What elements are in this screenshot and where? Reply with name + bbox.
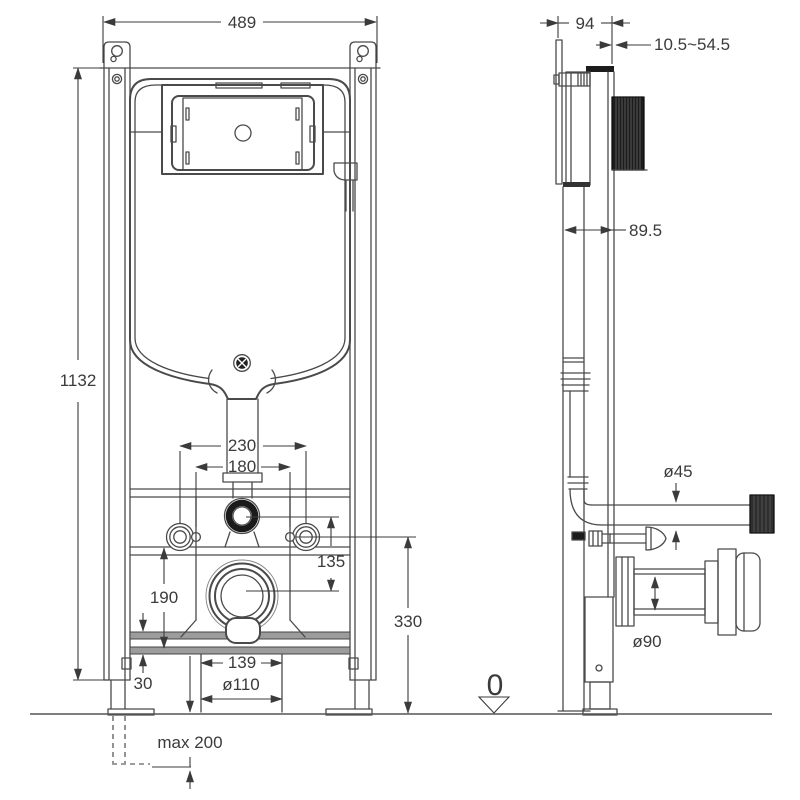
push-button-hole: [235, 125, 251, 141]
dim-waste-pipe-diameter: ø110: [201, 675, 282, 699]
access-panel: [162, 83, 323, 174]
flush-valve-screw: [234, 355, 251, 372]
fixing-rod: [589, 527, 666, 550]
dim-label-wall-adjustment-range: 10.5~54.5: [654, 35, 730, 54]
dim-label-waste-pipe-diameter: ø110: [222, 675, 260, 694]
dim-label-waste-connector-diameter: ø90: [632, 632, 661, 651]
dim-label-inner-fixing-spacing: 180: [228, 457, 256, 476]
flush-pipe-coupling: [750, 495, 774, 533]
side-frame: [556, 40, 617, 715]
dim-label-overall-depth: 94: [576, 14, 595, 33]
waste-connector: [616, 549, 760, 635]
dim-overall-width: 489: [103, 13, 377, 63]
front-view: [100, 42, 380, 715]
dim-waste-connector-diameter: ø90: [632, 577, 661, 651]
dim-overall-height: 1132: [60, 68, 108, 680]
dim-outlet-bracket-width: 139: [201, 653, 282, 672]
dim-overall-depth: 94: [540, 14, 630, 64]
inlet-fitting: [554, 73, 590, 86]
dim-label-rail-end-offset: 30: [134, 674, 153, 693]
technical-drawing: 489 1132 230 180 135: [0, 0, 800, 800]
dim-label-flush-to-waste-offset: 135: [317, 552, 345, 571]
dim-label-max-leg-extension: max 200: [157, 733, 222, 752]
dim-max-leg-extension: max 200: [112, 656, 223, 789]
dim-flush-pipe-diameter: ø45: [663, 462, 692, 550]
side-view: [554, 40, 774, 715]
wall-spacer-block: [612, 97, 647, 170]
dim-label-overall-width: 489: [228, 13, 256, 32]
drawing-page: 489 1132 230 180 135: [0, 0, 800, 800]
wall-bracket-plate: [556, 40, 562, 184]
datum-triangle-icon: [479, 697, 509, 713]
side-flush-pipe: [570, 489, 774, 540]
dim-label-lower-bracket-height: 190: [150, 588, 178, 607]
dim-wall-adjustment-range: 10.5~54.5: [596, 35, 730, 54]
dim-label-fixing-bolt-spacing: 230: [228, 436, 256, 455]
dimensions: 489 1132 230 180 135: [30, 13, 772, 789]
dim-label-overall-height: 1132: [60, 371, 97, 390]
mounting-tabs: [104, 42, 376, 84]
dim-fixing-height: 330: [296, 537, 422, 713]
dim-label-frame-depth: 89.5: [629, 221, 662, 240]
dim-label-flush-pipe-diameter: ø45: [663, 462, 692, 481]
dim-label-outlet-bracket-width: 139: [228, 653, 256, 672]
dim-label-fixing-height: 330: [394, 612, 422, 631]
